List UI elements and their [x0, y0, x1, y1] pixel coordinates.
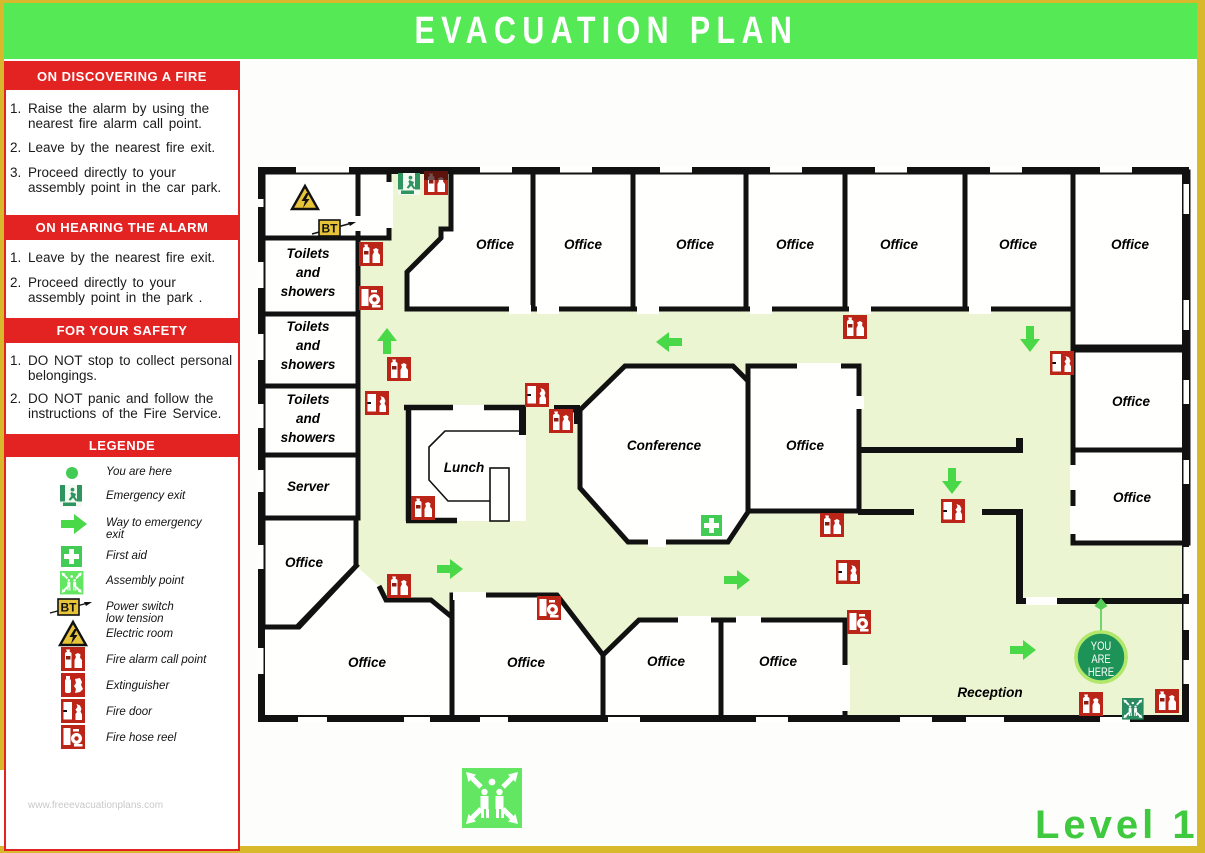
svg-text:showers: showers	[281, 357, 336, 372]
svg-text:Toilets: Toilets	[286, 392, 329, 407]
svg-text:and: and	[296, 265, 321, 280]
svg-text:Lunch: Lunch	[444, 460, 485, 475]
svg-text:YOU: YOU	[1091, 640, 1111, 653]
svg-text:Level 1: Level 1	[1035, 803, 1199, 847]
svg-text:Office: Office	[1112, 394, 1151, 409]
svg-text:Office: Office	[1113, 490, 1152, 505]
svg-text:showers: showers	[281, 430, 336, 445]
svg-text:Office: Office	[999, 237, 1038, 252]
svg-text:Server: Server	[287, 479, 330, 494]
svg-text:ARE: ARE	[1091, 653, 1110, 666]
svg-text:Office: Office	[880, 237, 919, 252]
svg-text:Office: Office	[285, 555, 324, 570]
svg-text:Office: Office	[1111, 237, 1150, 252]
svg-text:Office: Office	[759, 654, 798, 669]
svg-text:Office: Office	[476, 237, 515, 252]
svg-text:HERE: HERE	[1088, 666, 1114, 679]
svg-text:Office: Office	[507, 655, 546, 670]
svg-text:Office: Office	[348, 655, 387, 670]
svg-text:showers: showers	[281, 284, 336, 299]
svg-text:Office: Office	[776, 237, 815, 252]
svg-text:Office: Office	[676, 237, 715, 252]
svg-text:and: and	[296, 338, 321, 353]
svg-text:Office: Office	[647, 654, 686, 669]
svg-text:Reception: Reception	[957, 685, 1022, 700]
svg-text:Office: Office	[786, 438, 825, 453]
svg-text:Office: Office	[564, 237, 603, 252]
svg-text:and: and	[296, 411, 321, 426]
svg-text:Conference: Conference	[627, 438, 702, 453]
svg-text:Toilets: Toilets	[286, 319, 329, 334]
svg-text:Toilets: Toilets	[286, 246, 329, 261]
